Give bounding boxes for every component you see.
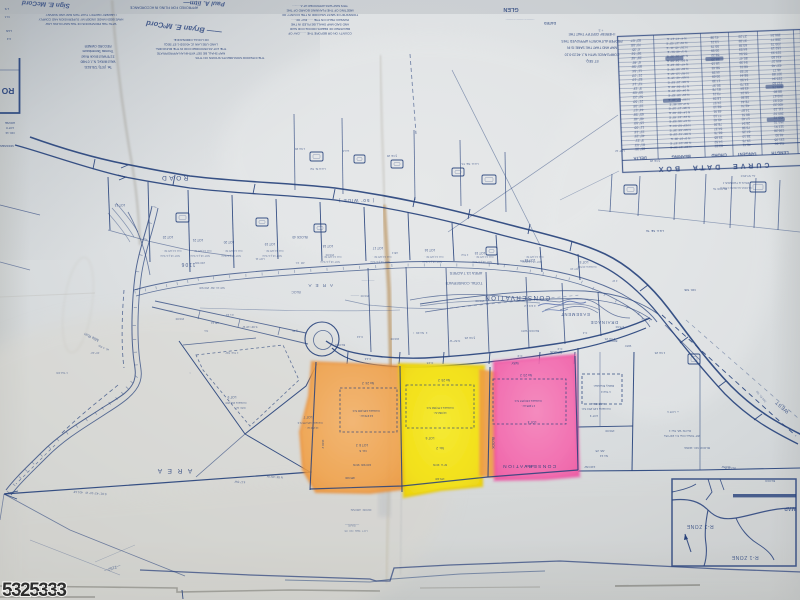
svg-text:37.39: 37.39: [738, 38, 747, 42]
svg-text:93.73: 93.73: [740, 82, 749, 86]
svg-text:AB 14.: AB 14.: [295, 261, 304, 265]
svg-text:NOT 16,p A Tenn: NOT 16,p A Tenn: [370, 260, 390, 264]
svg-text:COMPLIANCE WITH N.J. 46:23-9.1: COMPLIANCE WITH N.J. 46:23-9.10: [565, 52, 620, 56]
svg-text:4°-35': 4°-35': [631, 47, 640, 51]
svg-text:MONUMENT: MONUMENT: [0, 144, 14, 148]
svg-text:356.94: 356.94: [770, 33, 780, 37]
svg-text:No.: No.: [204, 329, 209, 333]
svg-text:WITH THE PROVISIONS OF THE MAP: WITH THE PROVISIONS OF THE MAP FILING LA…: [45, 22, 116, 26]
svg-text:LOT 16: LOT 16: [424, 248, 435, 252]
svg-text:—— ——: —— ——: [362, 279, 375, 283]
svg-text:DELTA: DELTA: [633, 155, 647, 161]
svg-text:LOT 7: LOT 7: [303, 415, 312, 419]
svg-text:74.87: 74.87: [741, 108, 750, 112]
svg-text:CONSERVATION: CONSERVATION: [502, 463, 556, 469]
svg-text:LOT 3: LOT 3: [590, 414, 599, 418]
svg-text:33°-35': 33°-35': [633, 103, 644, 107]
svg-text:N 47°-36'-12" E: N 47°-36'-12" E: [667, 62, 688, 67]
svg-text:1106 2: 1106 2: [321, 440, 325, 449]
svg-text:LAN: LAN: [6, 29, 12, 33]
svg-text:R-3 ZONE: R-3 ZONE: [686, 523, 714, 529]
svg-text:78.44: 78.44: [741, 99, 750, 103]
svg-text:86.51: 86.51: [741, 112, 750, 116]
svg-text:N 26°-45'-41" E: N 26°-45'-41" E: [666, 45, 687, 50]
svg-text:BLOCK: BLOCK: [335, 343, 345, 347]
svg-text:77.10: 77.10: [713, 113, 722, 117]
svg-text:1 Tod: 1 Tod: [461, 253, 468, 257]
svg-text:Contains 166,200: Contains 166,200: [225, 401, 247, 405]
svg-text:No 25 2: No 25 2: [438, 378, 450, 382]
svg-text:64.53: 64.53: [739, 47, 748, 51]
svg-text:260.02: 260.02: [773, 111, 783, 115]
svg-text:AREA 13.7 ACRES: AREA 13.7 ACRES: [449, 271, 482, 275]
svg-text:LOT 5: LOT 5: [579, 260, 588, 264]
svg-text:DATED: DATED: [544, 21, 557, 25]
svg-text:AB 4: AB 4: [392, 251, 399, 255]
svg-text:BLOCK: BLOCK: [491, 437, 495, 449]
svg-text:9°-13': 9°-13': [633, 86, 642, 90]
svg-text:Contains 165,200 S.F.: Contains 165,200 S.F.: [352, 409, 380, 413]
svg-text:239.75: 239.75: [771, 41, 781, 45]
svg-text:250 SW: 250 SW: [520, 259, 530, 263]
svg-text:Del W. WL Tax 1: Del W. WL Tax 1: [669, 429, 691, 433]
svg-text:AND SAID MAP SHALL BE FILED IN: AND SAID MAP SHALL BE FILED IN THE: [291, 22, 349, 26]
svg-text:LOT 18: LOT 18: [322, 244, 333, 248]
svg-text:67.25: 67.25: [742, 130, 751, 134]
svg-text:17.40: 17.40: [741, 117, 750, 121]
svg-text:MAP: MAP: [784, 505, 796, 511]
svg-text:LOT 6: LOT 6: [425, 436, 434, 440]
svg-text:58.45: 58.45: [711, 66, 720, 70]
svg-text:86°-31': 86°-31': [634, 147, 645, 151]
svg-text:112.91: 112.91: [774, 124, 784, 128]
svg-text:N 34°-08'-15" E: N 34°-08'-15" E: [668, 89, 689, 94]
svg-text:N 30°-55'-06" E: N 30°-55'-06" E: [667, 67, 688, 72]
svg-text:17,985 Ac ·: 17,985 Ac ·: [521, 404, 535, 408]
svg-text:S 84°-10' W: S 84°-10' W: [242, 325, 257, 329]
svg-text:68.10: 68.10: [713, 105, 722, 109]
svg-text:40°-25': 40°-25': [634, 134, 645, 138]
svg-text:N 63°-52'-04" E: N 63°-52'-04" E: [669, 123, 690, 128]
svg-text:55.54: 55.54: [739, 51, 748, 55]
svg-text:THE INTERIOR MONUMENTS SHOWN O: THE INTERIOR MONUMENTS SHOWN ON THIS: [195, 56, 264, 60]
svg-text:LAND USE LAW (C.40:55D-1 ET SE: LAND USE LAW (C.40:55D-1 ET SEQ): [164, 43, 218, 47]
svg-text:Tel. (973) 728-8131: Tel. (973) 728-8131: [84, 65, 112, 69]
svg-text:Con 14,125 SF ·: Con 14,125 SF ·: [192, 249, 211, 253]
svg-text:Contains 150,057 S.F.: Contains 150,057 S.F.: [514, 399, 542, 403]
svg-text:Con 14,125 SF ·: Con 14,125 SF ·: [424, 255, 443, 259]
svg-text:81°-03': 81°-03': [634, 142, 645, 146]
svg-text:150.00: 150.00: [475, 299, 485, 303]
svg-text:28°-48': 28°-48': [631, 56, 642, 60]
svg-text:Con 14,125 SF ·: Con 14,125 SF ·: [524, 255, 543, 259]
svg-text:No. 6: No. 6: [359, 449, 367, 453]
svg-text:LOT SEE NO 88: LOT SEE NO 88: [344, 529, 367, 533]
svg-text:150.00: 150.00: [325, 253, 334, 257]
svg-text:BROOK: BROOK: [607, 339, 618, 343]
svg-text:LOT 11: LOT 11: [255, 257, 265, 261]
svg-text:179 4W: 179 4W: [435, 477, 445, 481]
svg-text:L No 26: L No 26: [295, 147, 305, 151]
svg-text:N 82° W: N 82° W: [449, 339, 460, 343]
svg-text:LOT 21: LOT 21: [192, 238, 203, 242]
svg-text:NOT 16,p A Tenn: NOT 16,p A Tenn: [320, 260, 340, 264]
svg-text:11°-54': 11°-54': [631, 69, 642, 73]
svg-text:WAY: WAY: [511, 361, 519, 365]
svg-text:DRAINAGE: DRAINAGE: [590, 320, 618, 325]
svg-text:NO. 14: NO. 14: [5, 131, 14, 135]
svg-text:136.28: 136.28: [774, 128, 784, 132]
svg-text:72°-14': 72°-14': [632, 82, 643, 86]
svg-text:§ 26: § 26: [292, 329, 298, 333]
svg-text:1106: 1106: [181, 261, 196, 267]
svg-text:REGISTER OF DEEDS OFFICE FOR S: REGISTER OF DEEDS OFFICE FOR SAID: [289, 27, 350, 31]
svg-text:⋆: ⋆: [189, 371, 191, 375]
svg-text:Con 14,125 SF ·: Con 14,125 SF ·: [223, 249, 242, 253]
svg-text:BLOC: BLOC: [291, 290, 301, 294]
svg-text:66.76: 66.76: [714, 131, 723, 135]
svg-text:40°-32': 40°-32': [90, 351, 99, 355]
svg-text:17.39: 17.39: [712, 79, 721, 83]
svg-text:GLEN: GLEN: [503, 6, 518, 12]
svg-text:79.98: 79.98: [742, 125, 751, 129]
svg-text:N 88°-20'-53" E: N 88°-20'-53" E: [668, 80, 689, 85]
svg-text:A R E A: A R E A: [307, 283, 333, 288]
svg-text:I HEREBY CERTIFY THAT THE: I HEREBY CERTIFY THAT THE: [568, 32, 616, 36]
svg-text:4 W: 4 W: [612, 279, 617, 283]
svg-text:22°-16': 22°-16': [634, 129, 645, 133]
svg-text:3178 West Brook Road: 3178 West Brook Road: [81, 54, 114, 58]
svg-text:LOT 10: LOT 10: [570, 267, 580, 271]
svg-text:+ LOT 1: + LOT 1: [667, 410, 679, 414]
svg-text:13.21: 13.21: [710, 40, 719, 44]
svg-text:N 14°-55'-40" E: N 14°-55'-40" E: [669, 110, 690, 115]
svg-text:215.34: 215.34: [772, 76, 782, 80]
svg-text:WAY: WAY: [625, 344, 632, 348]
svg-text:73.21: 73.21: [712, 92, 721, 96]
svg-text:250.00 ———: 250.00 ———: [351, 294, 370, 298]
svg-text:30.99: 30.99: [711, 48, 720, 52]
svg-text:N.J.: N.J.: [4, 15, 10, 19]
svg-text:N 29°-08'-32" E: N 29°-08'-32" E: [668, 93, 689, 98]
svg-text:1 Tod 4W: 1 Tod 4W: [56, 371, 68, 375]
svg-text:N 38°-27'-10" E: N 38°-27'-10" E: [669, 106, 690, 111]
svg-text:AB. 2: AB. 2: [641, 317, 648, 321]
svg-text:Contains 175,560 S.F.: Contains 175,560 S.F.: [426, 406, 454, 410]
svg-text:BLOCK 40: BLOCK 40: [292, 235, 307, 239]
svg-text:RECORD OWNER: RECORD OWNER: [84, 44, 112, 48]
svg-text:88.80: 88.80: [773, 89, 782, 93]
svg-text:AB. 25: AB. 25: [595, 449, 604, 453]
svg-text:N 73°-56'-45" E: N 73°-56'-45" E: [668, 84, 689, 89]
svg-text:L.S: L.S: [5, 7, 10, 11]
svg-text:150.00: 150.00: [175, 317, 184, 321]
svg-text:38.10: 38.10: [742, 134, 751, 138]
svg-text:TANGENT: TANGENT: [737, 151, 758, 157]
svg-text:150.00: 150.00: [605, 429, 615, 433]
svg-text:NOT 16,p A Tenn: NOT 16,p A Tenn: [221, 254, 241, 258]
svg-text:RO: RO: [1, 86, 14, 96]
svg-text:PASSAIC HELD ON THE .......DAY: PASSAIC HELD ON THE .......DAY OF......: [291, 18, 349, 22]
svg-text:NOT 16,p A Tenn: NOT 16,p A Tenn: [160, 254, 180, 258]
svg-text:15°-59': 15°-59': [633, 121, 644, 125]
svg-text:58.86: 58.86: [741, 95, 750, 99]
svg-text:N 47°-56'-53" E: N 47°-56'-53" E: [669, 119, 690, 124]
svg-text:21°-23': 21°-23': [631, 73, 642, 77]
svg-text:N 86°-41'-23" E: N 86°-41'-23" E: [670, 132, 691, 137]
svg-text:337.88: 337.88: [772, 72, 782, 76]
svg-text:26.94: 26.94: [742, 121, 751, 125]
svg-text:100 SW 98 W: 100 SW 98 W: [353, 463, 371, 467]
svg-text:+ 3: + 3: [598, 28, 603, 32]
svg-text:70°-05': 70°-05': [630, 43, 641, 47]
svg-text:LOT 19: LOT 19: [264, 242, 275, 246]
svg-text:240 SW: 240 SW: [195, 261, 205, 265]
svg-text:152.19: 152.19: [771, 46, 781, 50]
svg-text:Contains 125,253 S.F.: Contains 125,253 S.F.: [581, 407, 611, 411]
svg-text:80.47: 80.47: [739, 56, 748, 60]
svg-text:4 x 14: 4 x 14: [226, 313, 234, 317]
svg-text:Lot A Tal: Lot A Tal: [694, 167, 705, 171]
svg-text:6°-46': 6°-46': [632, 60, 641, 64]
svg-text:THIS MAP WAS APPROVED AT A ...: THIS MAP WAS APPROVED AT A .........: [292, 4, 348, 8]
svg-text:N 4°-47'-17" E: N 4°-47'-17" E: [667, 36, 687, 41]
svg-text:C-4: C-4: [582, 331, 587, 335]
svg-text:50.37: 50.37: [712, 83, 721, 87]
svg-text:63.38: 63.38: [739, 43, 748, 47]
svg-text:WT Tithes One 8 x 247 Pla: WT Tithes One 8 x 247 Pla: [664, 434, 700, 438]
svg-text:64.37: 64.37: [714, 126, 723, 130]
svg-text:46.90: 46.90: [775, 133, 784, 137]
svg-text:59°-09': 59°-09': [632, 90, 643, 94]
svg-text:403.82: 403.82: [773, 98, 783, 102]
svg-text:Lot A St. Tal: Lot A St. Tal: [310, 167, 326, 171]
svg-text:TOTAL CONSERVATI: TOTAL CONSERVATI: [446, 281, 483, 285]
svg-text:437.46: 437.46: [771, 63, 781, 67]
svg-text:N 3°-37'-35" E: N 3°-37'-35" E: [671, 136, 691, 141]
svg-text:80°-56': 80°-56': [631, 64, 642, 68]
svg-text:( 50' WIDE ): ( 50' WIDE ): [338, 198, 374, 203]
svg-text:BLOCK: BLOCK: [765, 479, 775, 483]
svg-text:HOUSE: HOUSE: [5, 121, 15, 125]
svg-text:1 No 26: 1 No 26: [654, 351, 665, 355]
svg-text:Con 14,125 SF ·: Con 14,125 SF ·: [162, 249, 181, 253]
svg-text:14.52: 14.52: [714, 139, 723, 143]
svg-text:65°-58': 65°-58': [633, 112, 644, 116]
svg-text:434.80: 434.80: [771, 55, 781, 59]
svg-text:82°-07': 82°-07': [630, 38, 641, 42]
svg-text:§ No 26: § No 26: [387, 154, 398, 158]
svg-text:C-15: C-15: [426, 361, 433, 365]
svg-text:48°-48': 48°-48': [633, 116, 644, 120]
svg-text:CHORD: CHORD: [711, 152, 727, 158]
svg-text:NOT 16,p A Tenn: NOT 16,p A Tenn: [190, 254, 210, 258]
svg-text:48.91: 48.91: [713, 109, 722, 113]
svg-text:NOT 16,p A Tenn: NOT 16,p A Tenn: [472, 260, 492, 264]
svg-text:43.74: 43.74: [741, 104, 750, 108]
svg-text:43.84: 43.84: [740, 86, 749, 90]
svg-text:58.44: 58.44: [740, 73, 749, 77]
svg-text:LOT 8: LOT 8: [6, 126, 14, 130]
svg-text:140 NW: 140 NW: [584, 465, 595, 469]
svg-text:PAUL & THOMAS J: PAUL & THOMAS J: [722, 181, 749, 185]
svg-text:§ No 26: § No 26: [650, 159, 661, 163]
svg-text:268.77: 268.77: [770, 37, 780, 41]
svg-text:C-9: C-9: [517, 354, 522, 358]
svg-text:LOT 15: LOT 15: [474, 251, 485, 255]
svg-text:COUNTY ON OR BEFORE THE ......: COUNTY ON OR BEFORE THE ........DAY OF: [288, 32, 352, 36]
svg-text:4 1/4 x 2: 4 1/4 x 2: [524, 304, 536, 308]
svg-text:41.38: 41.38: [710, 35, 719, 39]
svg-text:ET SEQ.: ET SEQ.: [585, 59, 598, 63]
svg-text:Con 14,125 SF ·: Con 14,125 SF ·: [474, 255, 493, 259]
svg-text:HAVE BEEN MADE UNDER MY SUPERV: HAVE BEEN MADE UNDER MY SUPERVISION AND …: [39, 17, 124, 21]
svg-text:ROAD: ROAD: [160, 174, 189, 181]
svg-text:OF LOCAL ORDINANCE.: OF LOCAL ORDINANCE.: [173, 38, 209, 42]
svg-text:1 Tod. SW: 1 Tod. SW: [225, 351, 238, 355]
svg-text:3.84 Ac ·: 3.84 Ac ·: [234, 406, 245, 410]
svg-text:27.23: 27.23: [738, 34, 747, 38]
svg-text:12,839 Ac: 12,839 Ac: [591, 402, 605, 406]
svg-text:82°-10': 82°-10': [632, 77, 643, 81]
svg-text:68.91: 68.91: [739, 65, 748, 69]
svg-text:C-12: C-12: [357, 335, 364, 339]
svg-text:APPROVED FOR FILING IN ACCORDA: APPROVED FOR FILING IN ACCORDANCE: [129, 6, 198, 10]
svg-text:FROM ABOVE: FROM ABOVE: [351, 508, 372, 512]
svg-text:N 1°-48'-51" E: N 1°-48'-51" E: [667, 49, 687, 54]
svg-text:PROPER AUTHORITY APPROVED THIS: PROPER AUTHORITY APPROVED THIS: [561, 39, 623, 43]
svg-text:BEARING: BEARING: [671, 154, 690, 160]
svg-text:LOT 9: LOT 9: [227, 395, 236, 399]
svg-text:44°-07': 44°-07': [633, 108, 644, 112]
svg-text:405.37: 405.37: [771, 59, 781, 63]
svg-text:13,259 Ac ·: 13,259 Ac ·: [305, 426, 318, 430]
svg-text:52°-23': 52°-23': [632, 95, 643, 99]
svg-text:LOT 8 2: LOT 8 2: [356, 443, 369, 447]
svg-text:81.78: 81.78: [712, 87, 721, 91]
svg-text:N 46°-13'-42" E: N 46°-13'-42" E: [667, 71, 688, 76]
svg-text:EASEMENT: EASEMENT: [560, 312, 589, 317]
svg-text:131.35: 131.35: [774, 137, 784, 141]
svg-text:49.40: 49.40: [713, 118, 722, 122]
svg-text:SW 14. 4W 250 SW: SW 14. 4W 250 SW: [199, 286, 225, 290]
svg-text:21°-50': 21°-50': [632, 99, 643, 103]
svg-text:Con 14,125 SF ·: Con 14,125 SF ·: [372, 255, 391, 259]
svg-text:LOT 13: LOT 13: [114, 203, 125, 207]
svg-text:411.60: 411.60: [775, 141, 785, 145]
svg-text:NOT 16,p A Tenn: NOT 16,p A Tenn: [422, 260, 442, 264]
svg-text:14.50: 14.50: [740, 78, 749, 82]
svg-text:R-1 ZONE: R-1 ZONE: [731, 554, 759, 560]
svg-text:No 24 2: No 24 2: [362, 381, 374, 385]
svg-text:TOWNSHIP OF WEST MILFORD IN TH: TOWNSHIP OF WEST MILFORD IN THE COUNTY O…: [282, 13, 358, 17]
svg-text:BLOCK WAY: BLOCK WAY: [521, 329, 539, 333]
svg-text:11°-05': 11°-05': [633, 125, 644, 129]
svg-text:——: ——: [167, 309, 173, 313]
svg-text:GLORIA GLORAN 1706-A: GLORIA GLORAN 1706-A: [720, 186, 752, 190]
svg-text:319.33: 319.33: [771, 50, 781, 54]
svg-text:13,062 Ac·: 13,062 Ac·: [433, 411, 446, 415]
svg-text:Ridley Brendan: Ridley Brendan: [593, 384, 614, 388]
svg-text:West Milford, N.J. 07480: West Milford, N.J. 07480: [80, 60, 115, 64]
svg-text:78.26: 78.26: [714, 122, 723, 126]
svg-text:I HEREBY CERTIFY THAT THIS MAP: I HEREBY CERTIFY THAT THIS MAP AND SURVE…: [46, 13, 117, 17]
svg-text:..........................: ..........................: [506, 18, 535, 23]
svg-text:THE LOT AS PROVIDED FOR IN THE: THE LOT AS PROVIDED FOR IN THE MUNICIPAL: [155, 47, 226, 51]
svg-text:417 SW: 417 SW: [234, 480, 245, 485]
svg-text:FLOW: FLOW: [722, 465, 731, 469]
svg-text:36°-51': 36°-51': [631, 51, 642, 55]
svg-text:N 21°-34'-49" E: N 21°-34'-49" E: [669, 115, 690, 120]
svg-text:No 14: No 14: [600, 454, 608, 458]
svg-text:99.79: 99.79: [711, 44, 720, 48]
svg-text:Lot A. SE. TA: Lot A. SE. TA: [461, 162, 478, 166]
svg-text:16.24: 16.24: [740, 91, 749, 95]
svg-text:No. 2: No. 2: [436, 446, 444, 450]
svg-text:LOT 12: LOT 12: [615, 149, 625, 153]
svg-text:LOT 20: LOT 20: [223, 240, 234, 244]
svg-text:MAP SHALL BE SET WITHIN AN APP: MAP SHALL BE SET WITHIN AN APPROPRIATE: [157, 52, 225, 56]
svg-text:No 23 2: No 23 2: [520, 373, 532, 377]
svg-text:111.19: 111.19: [773, 107, 783, 111]
svg-text:160.00: 160.00: [390, 337, 399, 341]
svg-text:N 28°-34'-08" E: N 28°-34'-08" E: [670, 145, 691, 150]
svg-text:249.67: 249.67: [773, 94, 783, 98]
svg-text:400.22: 400.22: [773, 102, 783, 106]
svg-text:Contains 145,275 S.F.: Contains 145,275 S.F.: [297, 421, 323, 425]
svg-text:18.59: 18.59: [713, 96, 722, 100]
svg-text:M° A 30 W: M° A 30 W: [433, 463, 447, 467]
svg-text:LOT 22: LOT 22: [162, 235, 173, 239]
svg-text:385 NW: 385 NW: [345, 476, 355, 480]
svg-text:44.99: 44.99: [712, 70, 721, 74]
svg-text:58.22: 58.22: [711, 53, 720, 57]
svg-text:18.15: 18.15: [711, 61, 720, 65]
svg-text:Thomas Tannenbaum: Thomas Tannenbaum: [82, 49, 113, 53]
svg-text:AB 14: AB 14: [211, 321, 219, 325]
svg-text:—SIMS—: —SIMS—: [344, 523, 359, 527]
svg-text:BROOK: BROOK: [549, 350, 562, 354]
svg-text:LOT 4: LOT 4: [527, 420, 536, 424]
svg-text:70.41: 70.41: [742, 143, 751, 147]
svg-text:94.39: 94.39: [739, 60, 748, 64]
svg-text:A+ ST-45.0: A+ ST-45.0: [740, 174, 755, 178]
svg-text:39.85: 39.85: [714, 135, 723, 139]
svg-text:C-14: C-14: [364, 357, 371, 361]
svg-text:24.97: 24.97: [713, 100, 722, 104]
svg-text:N 76°-27'-02" E: N 76°-27'-02" E: [666, 41, 687, 46]
svg-text:30.69: 30.69: [712, 74, 721, 78]
svg-text:12.979 Ac ·: 12.979 Ac ·: [359, 414, 373, 418]
svg-text:N 68°-55'-38" E: N 68°-55'-38" E: [669, 128, 690, 133]
svg-text:CONSERVATION: CONSERVATION: [484, 294, 550, 301]
svg-text:9°-21': 9°-21': [635, 138, 644, 142]
svg-text:1 No 26 ⋆: 1 No 26 ⋆: [412, 331, 427, 335]
svg-text:5325333: 5325333: [2, 580, 67, 600]
svg-text:175.60: 175.60: [615, 325, 624, 329]
svg-text:MAP AND THAT THE SAME IS IN: MAP AND THAT THE SAME IS IN: [566, 46, 617, 50]
svg-text:N 30°-04'-57" E: N 30°-04'-57" E: [670, 141, 691, 146]
svg-text:BLOCK NO. 1106A: BLOCK NO. 1106A: [684, 446, 710, 450]
svg-text:LOT 17: LOT 17: [372, 246, 383, 250]
svg-text:83.83: 83.83: [714, 144, 723, 148]
svg-text:1 Tod 4: 1 Tod 4: [601, 390, 611, 394]
svg-text:Lot A· SE TA: Lot A· SE TA: [646, 229, 664, 233]
svg-text:NO. 726: NO. 726: [684, 288, 696, 292]
svg-text:46.77: 46.77: [773, 68, 782, 72]
svg-text:A R E A: A R E A: [156, 467, 192, 474]
svg-text:§ No 26: § No 26: [464, 336, 475, 340]
